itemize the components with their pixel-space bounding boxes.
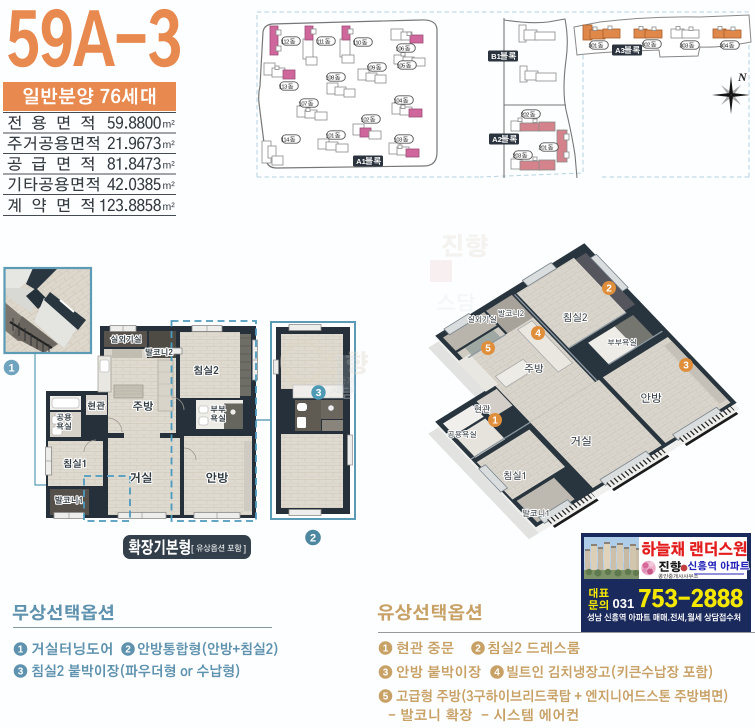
svg-text:202: 202 xyxy=(521,113,530,119)
svg-text:A2: A2 xyxy=(492,135,502,144)
svg-text:104: 104 xyxy=(394,99,404,105)
svg-text:3: 3 xyxy=(18,666,24,677)
svg-text:3: 3 xyxy=(383,667,389,678)
svg-text:m²: m² xyxy=(163,201,176,213)
svg-text:3: 3 xyxy=(683,361,689,372)
svg-text:110: 110 xyxy=(353,41,361,47)
svg-text:B1: B1 xyxy=(491,52,501,61)
svg-text:2: 2 xyxy=(606,284,612,295)
svg-text:A3: A3 xyxy=(615,46,625,55)
svg-text:112: 112 xyxy=(281,40,289,46)
svg-text:N: N xyxy=(737,70,748,84)
svg-text:3: 3 xyxy=(316,387,322,399)
svg-text:105: 105 xyxy=(397,64,406,70)
svg-text:1: 1 xyxy=(492,416,498,427)
svg-text:4: 4 xyxy=(494,667,500,678)
svg-text:102: 102 xyxy=(361,118,370,124)
svg-text:[: [ xyxy=(191,544,194,555)
svg-text:2: 2 xyxy=(310,532,316,544)
svg-text:113: 113 xyxy=(279,85,287,91)
svg-text:1: 1 xyxy=(18,644,24,655)
svg-text:107: 107 xyxy=(299,102,308,108)
svg-text:A1: A1 xyxy=(356,157,366,166)
svg-text:201: 201 xyxy=(539,146,548,152)
svg-text:304: 304 xyxy=(720,44,730,50)
svg-text:m²: m² xyxy=(163,139,176,151)
svg-text:031: 031 xyxy=(613,596,635,611)
svg-text:4: 4 xyxy=(535,329,541,340)
svg-text:2: 2 xyxy=(125,644,131,655)
svg-text:m²: m² xyxy=(163,180,176,192)
svg-text:5: 5 xyxy=(485,344,491,355)
svg-text:103: 103 xyxy=(394,138,403,144)
svg-text:108: 108 xyxy=(326,76,335,82)
svg-text:101: 101 xyxy=(326,134,335,140)
svg-text:2: 2 xyxy=(475,643,481,654)
svg-text:203: 203 xyxy=(513,154,522,160)
svg-text:302: 302 xyxy=(642,43,651,49)
svg-text:m²: m² xyxy=(163,160,176,172)
svg-text:]: ] xyxy=(244,544,247,555)
svg-text:111: 111 xyxy=(316,40,324,46)
svg-text:1: 1 xyxy=(383,643,389,654)
svg-text:109: 109 xyxy=(367,66,376,72)
svg-text:301: 301 xyxy=(589,44,598,50)
svg-text:1: 1 xyxy=(8,362,14,374)
svg-text:5: 5 xyxy=(383,691,389,702)
svg-text:106: 106 xyxy=(396,47,405,53)
svg-text:303: 303 xyxy=(680,44,689,50)
svg-text:m²: m² xyxy=(163,119,176,131)
svg-text:114: 114 xyxy=(281,138,290,144)
